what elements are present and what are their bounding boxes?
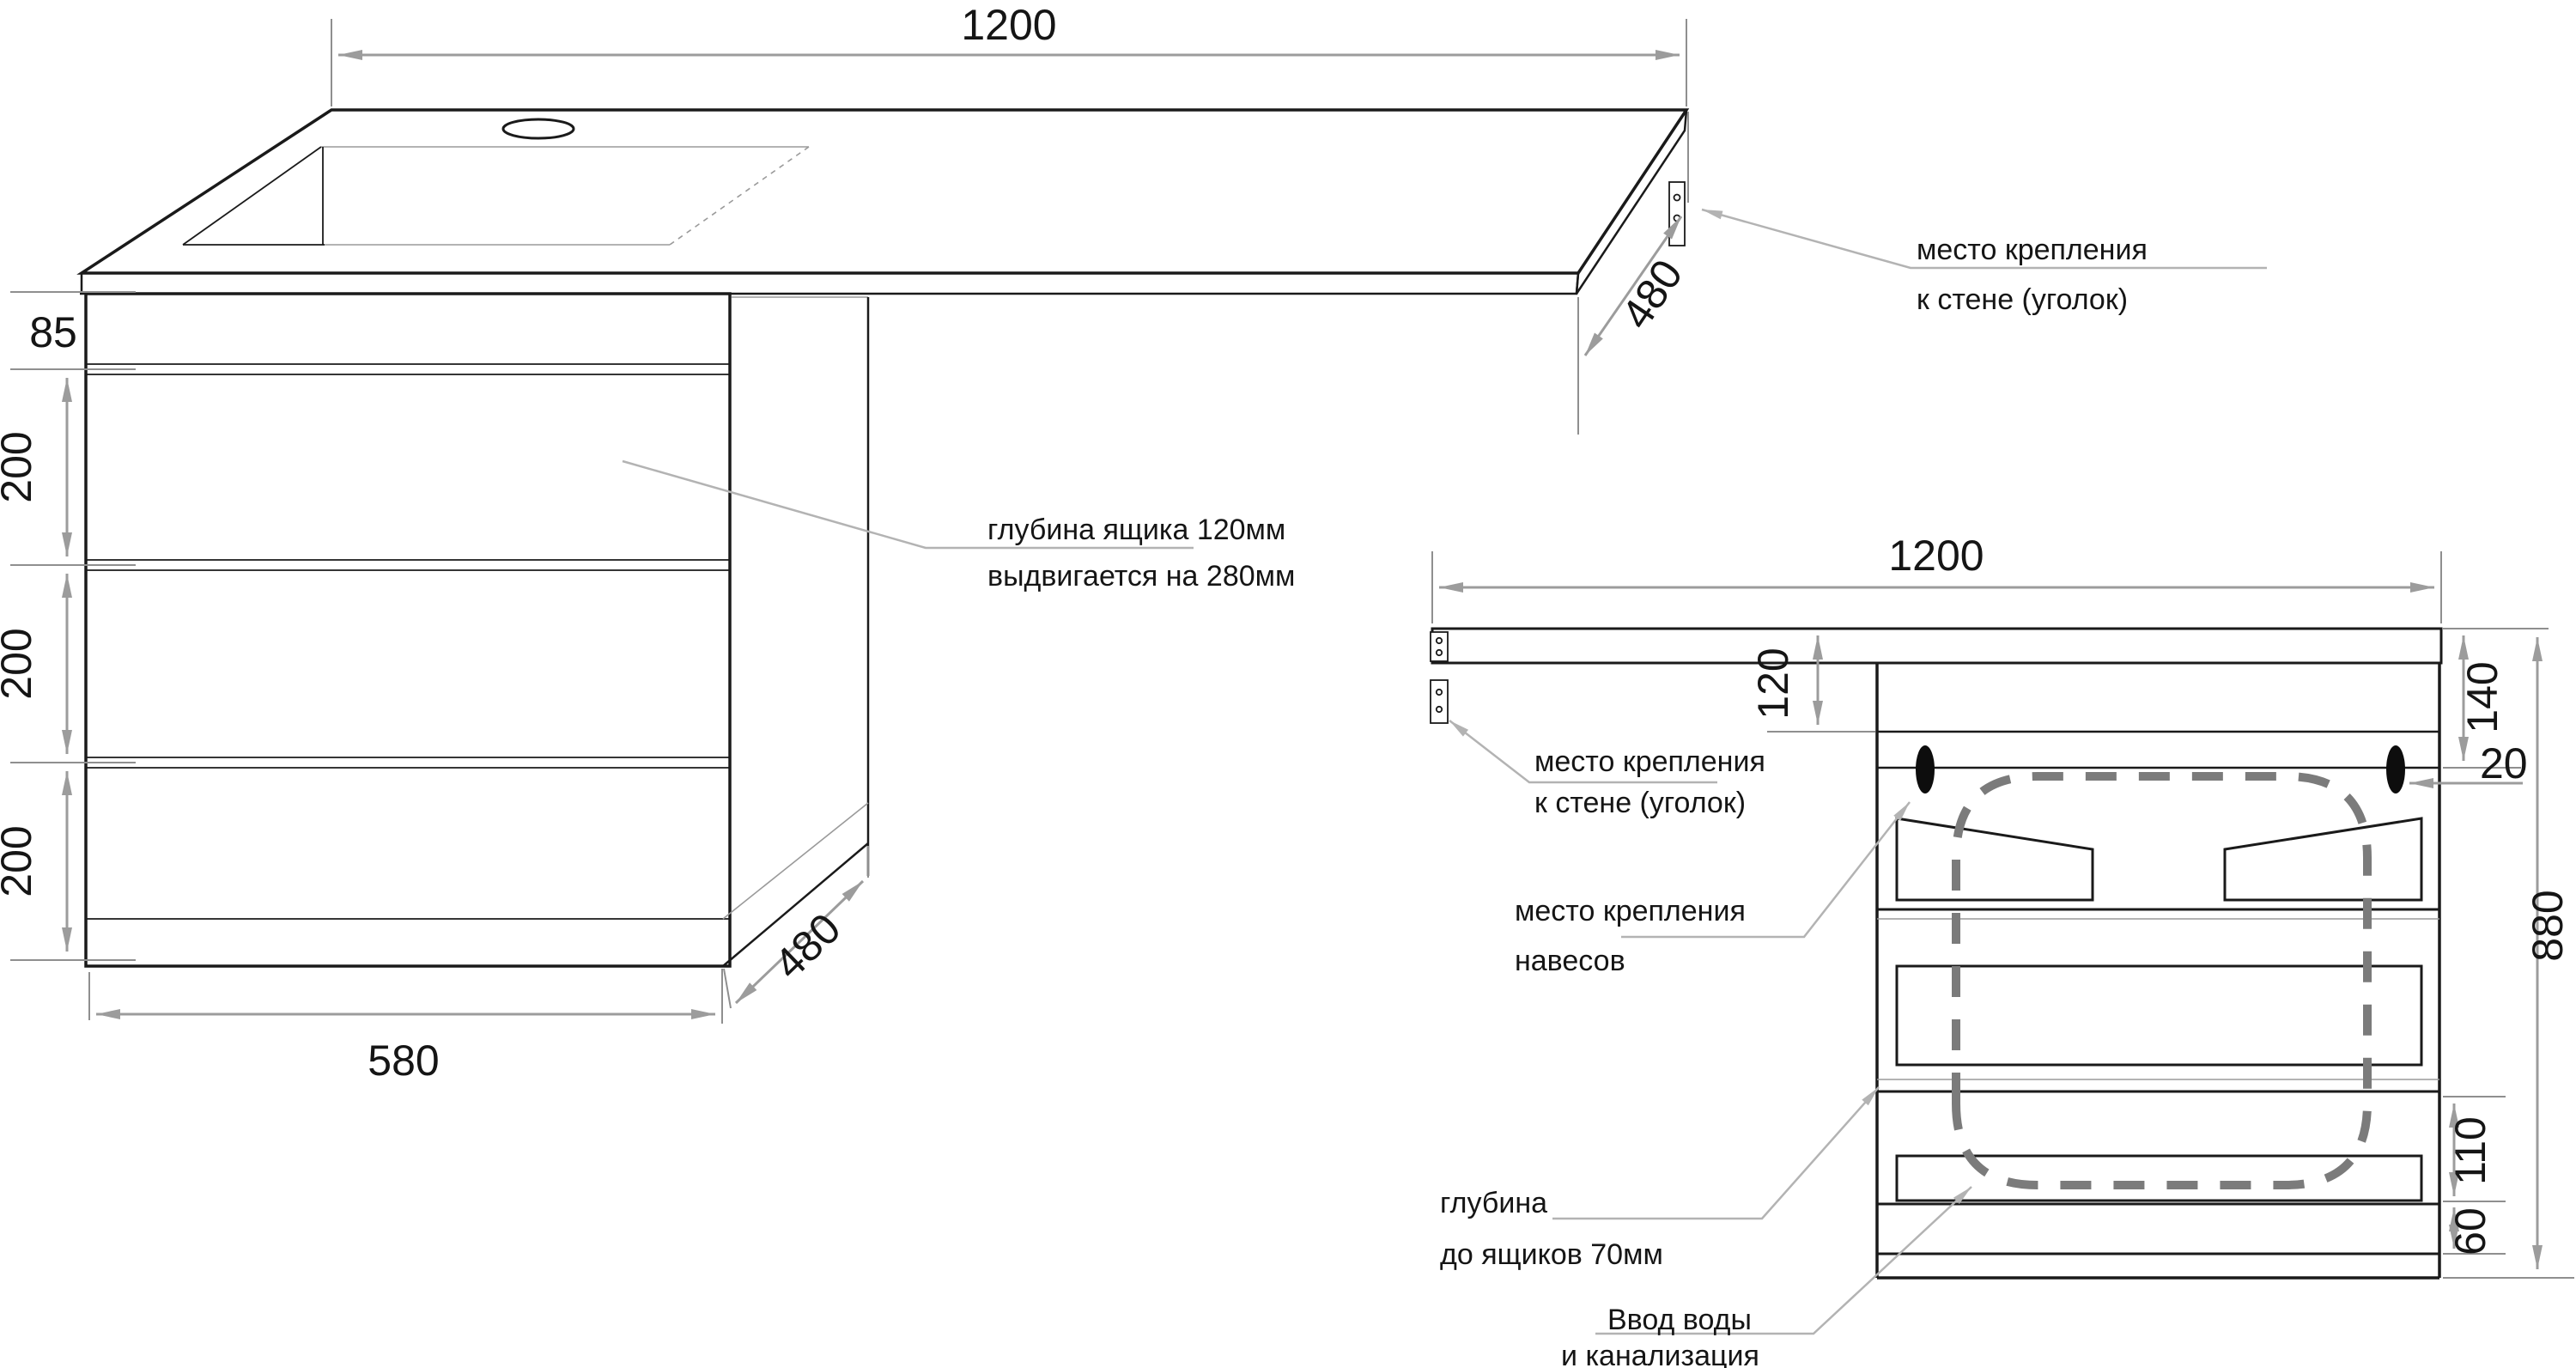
- label-hanger-mounts: место крепления навесов: [1515, 802, 1910, 977]
- front-view: 1200 120 140 20 880: [1431, 532, 2574, 1368]
- bracket-hole: [1437, 638, 1442, 643]
- vanity-drawing-svg: 1200 85 200 200 200 580 4: [0, 0, 2576, 1368]
- label-line2: к стене (уголок): [1917, 283, 2128, 316]
- dim-value: 580: [368, 1037, 439, 1085]
- dim-value: 140: [2458, 661, 2506, 733]
- label-line2: и канализация: [1561, 1340, 1759, 1368]
- wall-bracket-icon: [1669, 182, 1685, 246]
- bracket-hole: [1437, 690, 1442, 695]
- dim-value: 20: [2480, 739, 2528, 787]
- dim-cabinet-depth-480: 480: [724, 846, 868, 1008]
- cabinet-left-view: [86, 294, 868, 966]
- label-line1: место крепления: [1515, 895, 1746, 927]
- dim-plinth-60: 60: [2443, 1207, 2506, 1256]
- hanger-bracket-right: [2225, 818, 2421, 900]
- dim-left-width-1200: 1200: [331, 1, 1686, 106]
- dim-value: 1200: [961, 1, 1056, 49]
- hanger-mount-dot-right: [2386, 745, 2405, 793]
- bracket-hole: [1674, 195, 1680, 201]
- sink-basin: [183, 147, 809, 245]
- label-depth-to-drawers: глубина до ящиков 70мм: [1440, 1087, 1879, 1271]
- label-line2: выдвигается на 280мм: [987, 560, 1295, 593]
- extension-line: [724, 969, 731, 1008]
- dim-value: 120: [1749, 648, 1797, 719]
- hanger-bracket-left: [1897, 818, 2093, 900]
- dim-value: 480: [1612, 251, 1692, 337]
- hanger-mount-dot-left: [1916, 745, 1935, 793]
- bracket-hole: [1437, 650, 1442, 655]
- label-line2: навесов: [1515, 945, 1625, 977]
- bracket-hole: [1437, 707, 1442, 712]
- dim-drawer-zone-110: 110: [2443, 1097, 2506, 1201]
- cabinet-front: [86, 294, 730, 966]
- label-line1: место крепления: [1534, 745, 1765, 778]
- dim-value: 110: [2446, 1116, 2494, 1185]
- label-line2: к стене (уголок): [1534, 787, 1746, 819]
- drawer-front-middle: [1897, 966, 2421, 1065]
- leader-line: [1552, 1087, 1879, 1219]
- dim-value: 480: [765, 904, 850, 988]
- dim-value-200: 200: [0, 431, 40, 502]
- label-line1: место крепления: [1917, 234, 2148, 266]
- label-wall-mount-front: место крепления к стене (уголок): [1449, 720, 1765, 819]
- label-line1: Ввод воды: [1607, 1304, 1752, 1336]
- sink-right-rim: [670, 147, 809, 245]
- dim-front-width-1200: 1200: [1432, 532, 2441, 623]
- label-wall-mount-left: место крепления к стене (уголок): [1702, 210, 2267, 316]
- cabinet-front-view: [1877, 663, 2439, 1278]
- dim-value: 60: [2446, 1207, 2494, 1256]
- technical-drawing-canvas: 1200 85 200 200 200 580 4: [0, 0, 2576, 1368]
- label-line1: глубина: [1440, 1187, 1547, 1219]
- dim-hanger-offset-20: 20: [2409, 739, 2528, 787]
- bracket-plate: [1431, 680, 1448, 723]
- dim-value: 1200: [1888, 532, 1984, 580]
- wall-bracket-icon: [1431, 632, 1448, 723]
- bracket-plate: [1669, 182, 1685, 246]
- dim-value-85: 85: [29, 308, 77, 356]
- bracket-plate: [1431, 632, 1448, 661]
- dim-value: 880: [2524, 890, 2572, 961]
- faucet-hole-icon: [503, 119, 574, 138]
- label-line1: глубина ящика 120мм: [987, 514, 1285, 546]
- dim-value-200: 200: [0, 628, 40, 699]
- countertop: [80, 110, 1688, 294]
- dim-base-width-580: 580: [89, 969, 722, 1085]
- countertop-front-face: [80, 273, 1578, 294]
- countertop-strip: [1432, 629, 2441, 663]
- dim-value-200: 200: [0, 825, 40, 897]
- label-line2: до ящиков 70мм: [1440, 1238, 1663, 1271]
